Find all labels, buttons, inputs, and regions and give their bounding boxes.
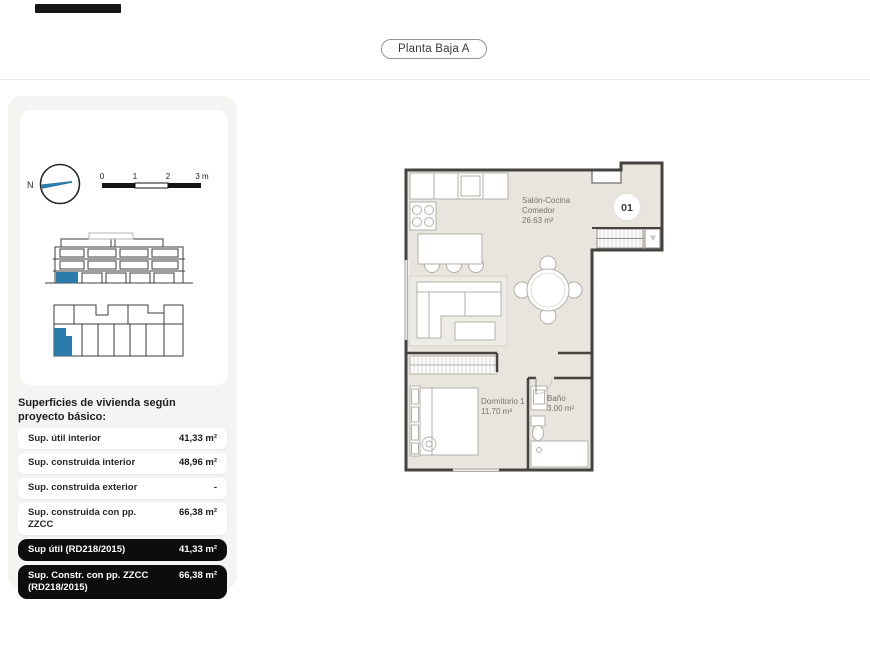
svg-text:3.00 m²: 3.00 m²	[547, 404, 574, 413]
highlighted-unit-siteplan	[54, 328, 72, 356]
svg-text:Dormitorio 1: Dormitorio 1	[481, 397, 525, 406]
svg-text:Salón-Cocina: Salón-Cocina	[522, 196, 571, 205]
table-row: Sup. construida interior 48,96 m²	[18, 453, 227, 474]
svg-text:26.63 m²: 26.63 m²	[522, 216, 554, 225]
svg-text:01: 01	[621, 202, 633, 214]
row-value: 66,38 m²	[179, 507, 217, 519]
header-divider	[0, 79, 870, 80]
row-value: -	[214, 482, 217, 494]
siteplan-drawing	[44, 300, 194, 362]
compass-icon: N	[26, 158, 86, 210]
table-row-highlighted: Sup útil (RD218/2015) 41,33 m²	[18, 539, 227, 561]
svg-text:Comedor: Comedor	[522, 206, 555, 215]
surfaces-table: Sup. útil interior 41,33 m² Sup. constru…	[18, 428, 227, 599]
coffee-table	[455, 322, 495, 340]
logo-bar	[35, 4, 121, 13]
row-value: 41,33 m²	[179, 433, 217, 445]
stove-icon	[410, 202, 436, 230]
elevation-drawing	[44, 230, 194, 288]
kitchen-counter	[410, 173, 508, 199]
svg-text:11.70 m²: 11.70 m²	[481, 407, 512, 416]
row-value: 66,38 m²	[179, 570, 217, 582]
surfaces-heading: Superficies de vivienda según proyecto b…	[18, 396, 203, 425]
scale-tick: 1	[133, 172, 138, 181]
bed	[410, 386, 478, 456]
side-panel: N 0 1 2 3 m	[8, 96, 237, 590]
svg-text:Baño: Baño	[547, 394, 566, 403]
floor-selector-pill[interactable]: Planta Baja A	[381, 39, 487, 59]
row-label: Sup. construida exterior	[28, 482, 137, 494]
row-label: Sup. construida interior	[28, 457, 135, 469]
kitchen-island	[418, 234, 484, 273]
unit-number-badge: 01	[614, 194, 641, 221]
highlighted-unit-elevation	[56, 272, 78, 283]
row-label: Sup. construida con pp. ZZCC	[28, 507, 158, 531]
floorplan-svg: Salón-Cocina Comedor 26.63 m² Dormitorio…	[395, 160, 675, 475]
table-row-highlighted: Sup. Constr. con pp. ZZCC (RD218/2015) 6…	[18, 565, 227, 599]
row-value: 48,96 m²	[179, 457, 217, 469]
info-card: N 0 1 2 3 m	[20, 110, 228, 385]
entry-column	[592, 170, 621, 183]
scale-bar: 0 1 2 3 m	[98, 170, 210, 194]
scale-tick: 3 m	[195, 172, 209, 181]
table-row: Sup. construida exterior -	[18, 478, 227, 499]
row-value: 41,33 m²	[179, 544, 217, 556]
scale-tick: 0	[100, 172, 105, 181]
row-label: Sup. Constr. con pp. ZZCC (RD218/2015)	[28, 570, 158, 594]
north-label: N	[27, 180, 34, 190]
wardrobe	[410, 356, 497, 374]
table-row: Sup. construida con pp. ZZCC 66,38 m²	[18, 503, 227, 536]
table-row: Sup. útil interior 41,33 m²	[18, 428, 227, 449]
row-label: Sup útil (RD218/2015)	[28, 544, 125, 556]
stairs-icon	[597, 229, 660, 248]
scale-tick: 2	[166, 172, 171, 181]
row-label: Sup. útil interior	[28, 433, 101, 445]
compass-needle	[41, 181, 72, 189]
